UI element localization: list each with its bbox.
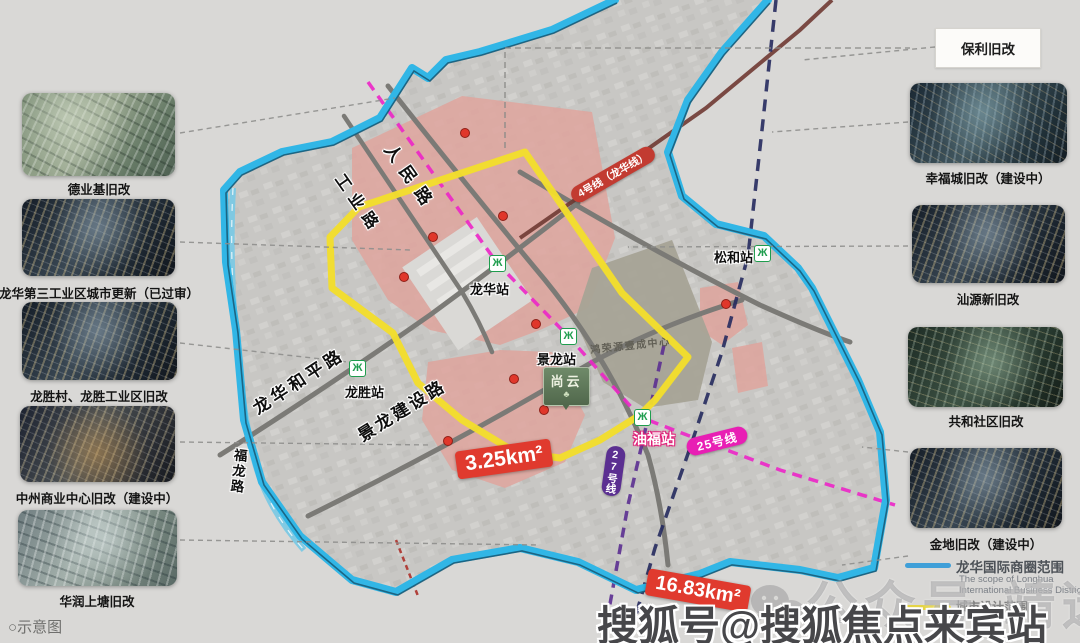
photo-zhongzhou (20, 406, 175, 482)
schematic-bullet-icon: ○ (8, 619, 17, 636)
photo-deyeji (22, 93, 175, 176)
shangyun-landmark: 尚云 ♣ (543, 367, 590, 406)
metro-icon: Ж (560, 328, 577, 345)
caption-jindi: 金地旧改（建设中） (866, 534, 1080, 553)
photo-xingfucheng (910, 83, 1067, 163)
metro-icon: Ж (754, 245, 771, 262)
caption-xingfucheng: 幸福城旧改（建设中） (868, 168, 1080, 187)
caption-deyeji: 德业基旧改 (0, 179, 219, 198)
schematic-note-text: 示意图 (17, 619, 62, 636)
photo-longhua-3rd-industrial (22, 199, 175, 276)
caption-huarun-shangtang: 华润上塘旧改 (0, 591, 217, 610)
callout-baoli: 保利旧改 (935, 28, 1041, 68)
shangyun-pointer-icon (562, 404, 570, 410)
caption-gonghe-shequ: 共和社区旧改 (866, 411, 1080, 430)
photo-jindi (910, 448, 1062, 528)
station-label-songhe: 松和站 (714, 247, 753, 266)
caption-zhongzhou: 中州商业中心旧改（建设中） (0, 488, 217, 507)
metro-icon: Ж (634, 409, 651, 426)
metro-icon: Ж (489, 255, 506, 272)
station-label-jinglong: 景龙站 (537, 349, 576, 368)
photo-gonghe-shequ (908, 327, 1063, 407)
photo-longshengcun (22, 302, 177, 380)
metro-icon: Ж (349, 360, 366, 377)
caption-longhua-3rd-industrial: 龙华第三工业区城市更新（已过审） (0, 283, 219, 302)
caption-longshengcun: 龙胜村、龙胜工业区旧改 (0, 386, 219, 405)
longhua-business-district-map: 德业基旧改 龙华第三工业区城市更新（已过审） 龙胜村、龙胜工业区旧改 中州商业中… (0, 0, 1080, 643)
caption-shanyuanxin: 汕源新旧改 (868, 289, 1080, 308)
photo-shanyuanxin (912, 205, 1065, 283)
shangyun-label: 尚云 (544, 371, 589, 390)
photo-huarun-shangtang (18, 510, 177, 586)
watermark-sohu: 搜狐号@搜狐焦点来宾站 (597, 592, 1047, 643)
schematic-note: ○示意图 (8, 616, 62, 637)
station-label-longsheng: 龙胜站 (345, 382, 384, 401)
shangyun-logo-icon: ♣ (544, 390, 589, 399)
station-label-longhua: 龙华站 (470, 279, 509, 298)
station-label-youfu: 油福站 (633, 429, 675, 449)
